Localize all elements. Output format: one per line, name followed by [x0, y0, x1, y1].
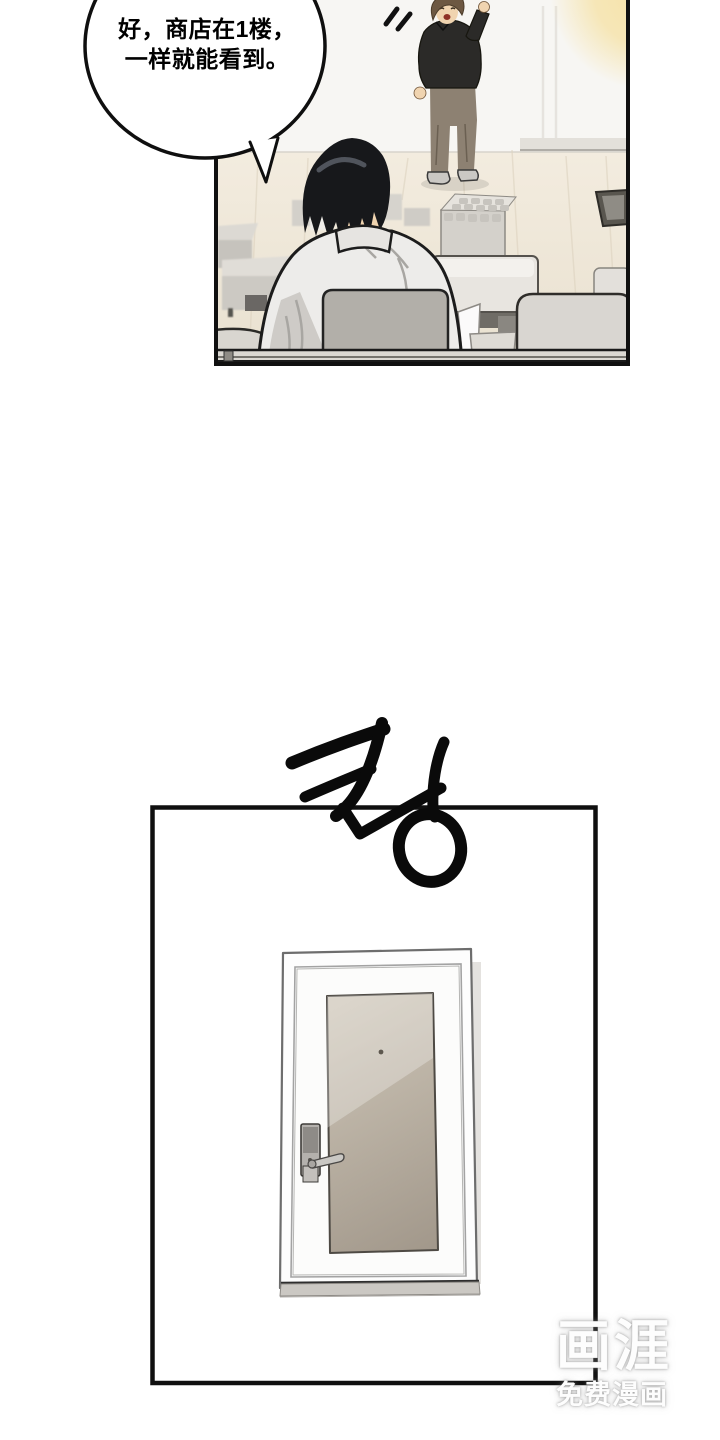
- raised-hand: [479, 2, 490, 13]
- speech-bubble-text: 好，商店在1楼， 一样就能看到。: [90, 14, 324, 74]
- turtleneck-collar: [336, 226, 392, 252]
- speech-line-2: 一样就能看到。: [90, 44, 324, 74]
- comic-art: [0, 0, 720, 1440]
- watermark-logo: 画涯: [556, 1316, 716, 1376]
- watermark: 画涯 免费漫画: [556, 1316, 716, 1410]
- watermark-tagline: 免费漫画: [556, 1380, 716, 1410]
- desk-counter: [218, 350, 626, 363]
- desk-notch: [224, 351, 233, 361]
- fist: [414, 87, 426, 99]
- speech-line-1: 好，商店在1楼，: [90, 14, 324, 44]
- display-board: [596, 190, 629, 226]
- peephole: [379, 1050, 384, 1055]
- open-mouth: [444, 14, 451, 20]
- chair-back: [323, 290, 448, 352]
- door-threshold: [280, 1281, 480, 1297]
- comic-page: 好，商店在1楼， 一样就能看到。 画涯 免费漫画: [0, 0, 720, 1440]
- apartment-door: [280, 949, 481, 1297]
